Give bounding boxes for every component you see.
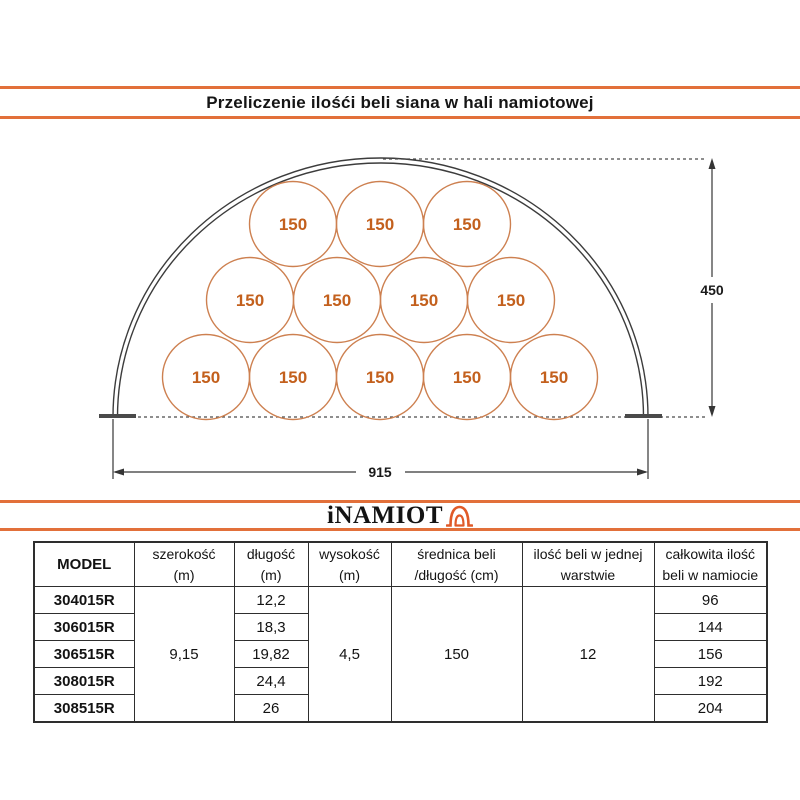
header-line: całkowita ilość [657,544,765,564]
total-cell: 156 [654,641,767,668]
col-header-wysokosc: wysokość (m) [308,542,391,587]
header-line: średnica beli [394,544,520,564]
arrow-right-icon [637,469,648,476]
bale-diameter-label: 150 [453,368,481,387]
bale-diameter-label: 150 [366,368,394,387]
bale-diameter-label: 150 [540,368,568,387]
total-cell: 204 [654,695,767,723]
dlugosc-cell: 12,2 [234,587,308,614]
tent-arch-icon [446,504,473,528]
height-dim-value: 450 [700,282,724,298]
tent-arch-diagram: 150 150 150 150 150 150 150 150 150 150 … [0,125,800,490]
dlugosc-cell: 19,82 [234,641,308,668]
header-line: (m) [137,565,232,585]
arrow-up-icon [709,158,716,169]
header-line: (m) [311,565,389,585]
header-line: wysokość [311,544,389,564]
model-cell: 306015R [34,614,134,641]
header-line: ilość beli w jednej [525,544,652,564]
srednica-merged-cell: 150 [391,587,522,723]
bale-diameter-label: 150 [236,291,264,310]
header-line: beli w namiocie [657,565,765,585]
bale-diameter-label: 150 [192,368,220,387]
dlugosc-cell: 26 [234,695,308,723]
bale-diameter-label: 150 [366,215,394,234]
col-header-srednica: średnica beli /długość (cm) [391,542,522,587]
dlugosc-cell: 18,3 [234,614,308,641]
header-line: (m) [237,565,306,585]
title-band: Przeliczenie ilośći beli siana w hali na… [0,86,800,119]
page-title: Przeliczenie ilośći beli siana w hali na… [206,93,594,113]
table-row: 304015R 9,15 12,2 4,5 150 12 96 [34,587,767,614]
model-spec-table: MODEL szerokość (m) długość (m) wysokość… [33,541,768,723]
bale-diameter-label: 150 [497,291,525,310]
total-cell: 96 [654,587,767,614]
col-header-szerokosc: szerokość (m) [134,542,234,587]
total-cell: 192 [654,668,767,695]
header-line: długość [237,544,306,564]
szerokosc-merged-cell: 9,15 [134,587,234,723]
width-dim-value: 915 [368,464,392,480]
wysokosc-merged-cell: 4,5 [308,587,391,723]
page: Przeliczenie ilośći beli siana w hali na… [0,0,800,800]
total-cell: 144 [654,614,767,641]
arrow-left-icon [113,469,124,476]
model-cell: 306515R [34,641,134,668]
header-row: MODEL szerokość (m) długość (m) wysokość… [34,542,767,587]
col-header-dlugosc: długość (m) [234,542,308,587]
header-line: /długość (cm) [394,565,520,585]
header-line: szerokość [137,544,232,564]
logo-band: iNAMIOT [0,500,800,531]
ilosc-warstwa-merged-cell: 12 [522,587,654,723]
col-header-calkowita: całkowita ilość beli w namiocie [654,542,767,587]
bale-diameter-label: 150 [323,291,351,310]
model-cell: 308515R [34,695,134,723]
col-header-model: MODEL [34,542,134,587]
model-cell: 308015R [34,668,134,695]
bale-diameter-label: 150 [279,368,307,387]
header-line: MODEL [37,554,132,576]
dlugosc-cell: 24,4 [234,668,308,695]
bale-diameter-label: 150 [453,215,481,234]
bale-diameter-label: 150 [279,215,307,234]
brand-logo-text: iNAMIOT [327,503,443,528]
col-header-ilosc-warstwa: ilość beli w jednej warstwie [522,542,654,587]
model-cell: 304015R [34,587,134,614]
arrow-down-icon [709,406,716,417]
bale-diameter-label: 150 [410,291,438,310]
header-line: warstwie [525,565,652,585]
